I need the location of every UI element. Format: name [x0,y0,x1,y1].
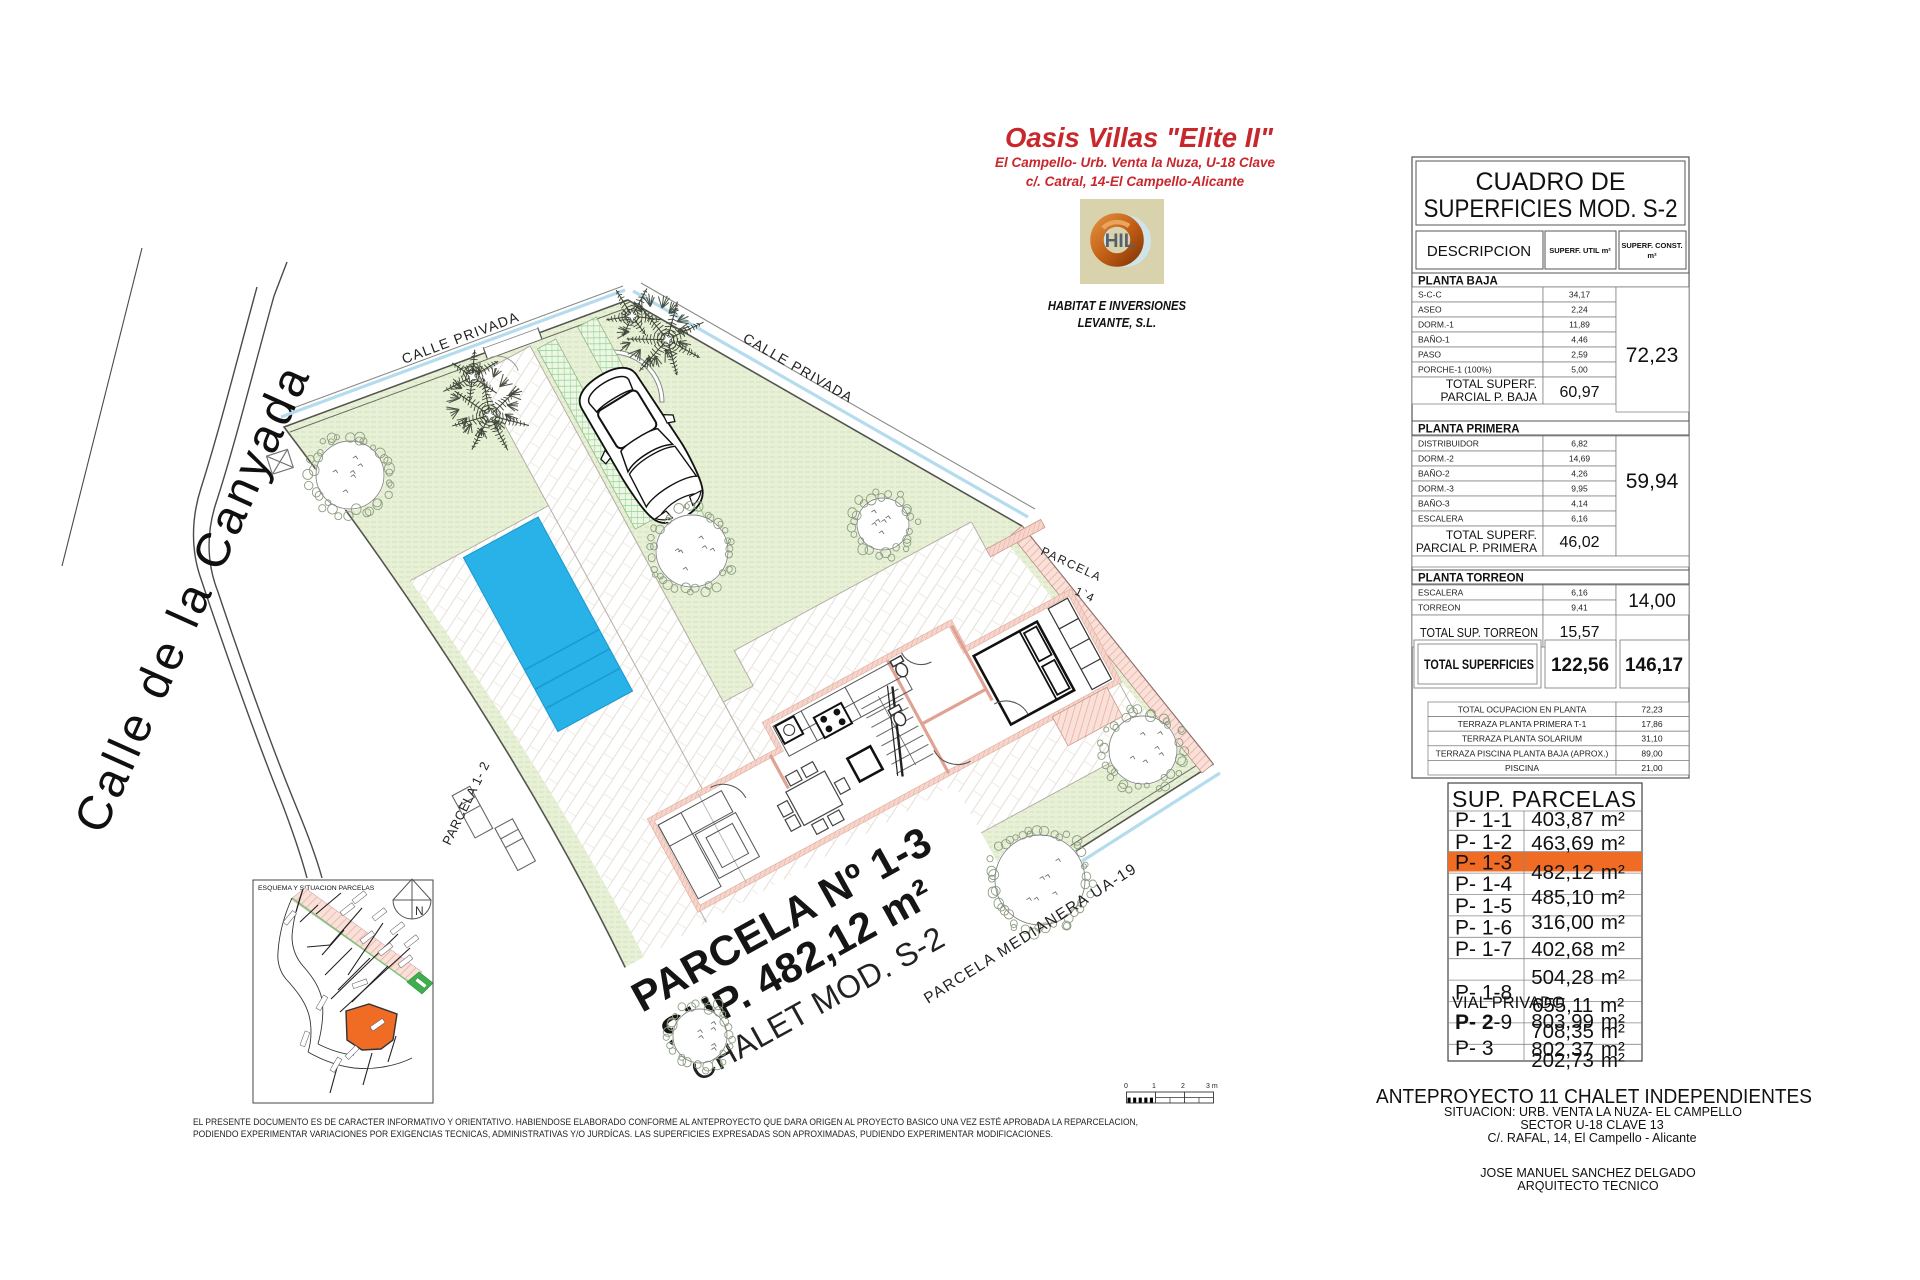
svg-text:CUADRO DE: CUADRO DE [1475,168,1625,196]
svg-text:DORM.-3: DORM.-3 [1418,484,1454,494]
svg-text:PASO: PASO [1418,350,1441,360]
svg-text:TERRAZA PISCINA PLANTA BAJA (A: TERRAZA PISCINA PLANTA BAJA (APROX.) [1436,748,1609,758]
svg-text:14,69: 14,69 [1569,454,1591,464]
svg-text:14,00: 14,00 [1628,591,1676,612]
svg-text:504,28m²: 504,28m² [1531,966,1625,989]
svg-text:1: 1 [1152,1083,1156,1090]
svg-text:485,10m²: 485,10m² [1531,886,1625,909]
svg-text:P- 1-4: P- 1-4 [1455,873,1513,896]
svg-text:2: 2 [1181,1083,1185,1090]
svg-text:60,97: 60,97 [1559,384,1599,401]
svg-text:9,95: 9,95 [1571,484,1588,494]
svg-text:P- 1-6: P- 1-6 [1455,917,1512,940]
svg-text:TOTAL SUPERFICIES: TOTAL SUPERFICIES [1424,656,1534,672]
svg-text:PARCIAL P. BAJA: PARCIAL P. BAJA [1441,390,1538,404]
svg-text:PODIENDO EXPERIMENTAR VARIACIO: PODIENDO EXPERIMENTAR VARIACIONES POR EX… [193,1129,1053,1139]
svg-text:DORM.-2: DORM.-2 [1418,454,1454,464]
svg-text:SITUACION: URB. VENTA LA NUZA-: SITUACION: URB. VENTA LA NUZA- EL CAMPEL… [1444,1105,1742,1119]
svg-text:P- 2-9: P- 2-9 [1455,1011,1512,1034]
svg-text:HABITAT E INVERSIONES: HABITAT E INVERSIONES [1048,298,1186,313]
svg-text:JOSE MANUEL SANCHEZ DELGADO: JOSE MANUEL SANCHEZ DELGADO [1480,1166,1696,1180]
svg-text:c/. Catral, 14-El Campello-Ali: c/. Catral, 14-El Campello-Alicante [1026,174,1245,189]
svg-text:PLANTA TORREON: PLANTA TORREON [1418,573,1524,585]
svg-text:15,57: 15,57 [1559,624,1599,641]
svg-text:ESCALERA: ESCALERA [1418,514,1464,524]
svg-text:463,69m²: 463,69m² [1531,832,1625,855]
svg-text:9,41: 9,41 [1571,603,1588,613]
svg-text:PLANTA PRIMERA: PLANTA PRIMERA [1418,424,1520,436]
svg-text:146,17: 146,17 [1625,655,1683,676]
svg-text:P- 1-3: P- 1-3 [1455,852,1512,875]
svg-text:TORREON: TORREON [1418,603,1460,613]
svg-text:BAÑO-2: BAÑO-2 [1418,469,1450,479]
svg-text:72,23: 72,23 [1641,705,1663,715]
svg-text:21,00: 21,00 [1641,763,1663,773]
svg-text:PISCINA: PISCINA [1505,763,1539,773]
svg-text:5,00: 5,00 [1571,365,1588,375]
svg-text:BAÑO-3: BAÑO-3 [1418,499,1450,509]
svg-text:SUPERFICIES MOD. S-2: SUPERFICIES MOD. S-2 [1424,195,1678,223]
svg-text:34,17: 34,17 [1569,290,1591,300]
svg-text:TOTAL OCUPACION EN PLANTA: TOTAL OCUPACION EN PLANTA [1458,705,1587,715]
svg-text:0: 0 [1124,1083,1128,1090]
svg-text:m²: m² [1647,251,1657,260]
svg-text:482,12m²: 482,12m² [1531,861,1625,884]
svg-text:202,73m²: 202,73m² [1531,1049,1625,1072]
svg-text:2,24: 2,24 [1571,305,1588,315]
svg-text:11,89: 11,89 [1569,320,1590,330]
svg-text:17,86: 17,86 [1641,719,1663,729]
svg-text:89,00: 89,00 [1641,748,1663,758]
svg-text:59,94: 59,94 [1626,470,1679,493]
svg-text:HIL: HIL [1105,231,1136,252]
svg-text:TOTAL SUP. TORREON: TOTAL SUP. TORREON [1420,625,1538,640]
svg-text:402,68m²: 402,68m² [1531,938,1625,961]
svg-text:PORCHE-1 (100%): PORCHE-1 (100%) [1418,365,1492,375]
svg-text:P- 1-7: P- 1-7 [1455,938,1512,961]
svg-text:6,82: 6,82 [1571,439,1588,449]
svg-text:SUPERF. UTIL m²: SUPERF. UTIL m² [1549,246,1611,255]
svg-text:ESCALERA: ESCALERA [1418,588,1464,598]
svg-text:2,59: 2,59 [1571,350,1588,360]
svg-text:6,16: 6,16 [1571,514,1588,524]
svg-text:C/. RAFAL, 14, El Campello - A: C/. RAFAL, 14, El Campello - Alicante [1487,1131,1696,1145]
svg-text:SUPERF. CONST.: SUPERF. CONST. [1621,241,1682,250]
svg-text:6,16: 6,16 [1571,588,1588,598]
svg-text:403,87m²: 403,87m² [1531,808,1625,831]
svg-text:122,56: 122,56 [1551,655,1609,676]
svg-text:4,26: 4,26 [1571,469,1588,479]
svg-text:DORM.-1: DORM.-1 [1418,320,1454,330]
svg-text:46,02: 46,02 [1559,534,1599,551]
svg-text:ASEO: ASEO [1418,305,1442,315]
svg-text:N: N [415,904,424,918]
svg-text:DISTRIBUIDOR: DISTRIBUIDOR [1418,439,1479,449]
svg-text:El Campello- Urb. Venta la Nuz: El Campello- Urb. Venta la Nuza, U-18 Cl… [995,155,1276,170]
svg-text:4,46: 4,46 [1571,335,1588,345]
svg-text:P- 1-5: P- 1-5 [1455,895,1512,918]
svg-text:TOTAL SUPERF.: TOTAL SUPERF. [1446,377,1537,391]
svg-text:EL PRESENTE DOCUMENTO ES DE CA: EL PRESENTE DOCUMENTO ES DE CARACTER INF… [193,1117,1138,1127]
svg-text:LEVANTE, S.L.: LEVANTE, S.L. [1078,315,1156,330]
svg-text:ESQUEMA Y SITUACION PARCELAS: ESQUEMA Y SITUACION PARCELAS [258,885,375,892]
svg-text:316,00m²: 316,00m² [1531,911,1625,934]
svg-text:31,10: 31,10 [1641,734,1663,744]
svg-text:P- 1-1: P- 1-1 [1455,809,1512,832]
svg-text:BAÑO-1: BAÑO-1 [1418,335,1450,345]
svg-text:TERRAZA PLANTA SOLARIUM: TERRAZA PLANTA SOLARIUM [1462,734,1582,744]
svg-text:S-C-C: S-C-C [1418,290,1442,300]
svg-text:ARQUITECTO TECNICO: ARQUITECTO TECNICO [1517,1179,1658,1193]
svg-text:4,14: 4,14 [1571,499,1588,509]
svg-text:TOTAL SUPERF.: TOTAL SUPERF. [1446,528,1537,542]
svg-text:DESCRIPCION: DESCRIPCION [1427,243,1531,260]
svg-text:Calle de la Canyada: Calle de la Canyada [65,355,322,840]
svg-text:PARCELA 1- 2: PARCELA 1- 2 [439,759,492,847]
svg-text:PLANTA BAJA: PLANTA BAJA [1418,276,1498,288]
svg-text:P- 3: P- 3 [1455,1037,1494,1060]
svg-text:SECTOR U-18 CLAVE 13: SECTOR U-18 CLAVE 13 [1520,1118,1663,1132]
svg-text:TERRAZA PLANTA PRIMERA T-1: TERRAZA PLANTA PRIMERA T-1 [1458,719,1587,729]
svg-text:PARCIAL P. PRIMERA: PARCIAL P. PRIMERA [1416,541,1537,555]
svg-text:3 m: 3 m [1206,1083,1218,1090]
svg-text:72,23: 72,23 [1626,344,1679,367]
svg-text:Oasis Villas "Elite II": Oasis Villas "Elite II" [1005,122,1274,153]
